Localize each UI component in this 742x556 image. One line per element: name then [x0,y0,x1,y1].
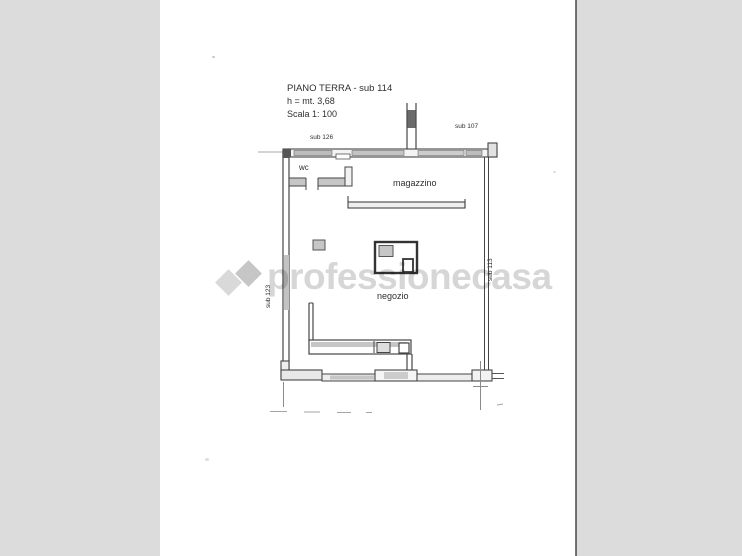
sub-label-123: sub 123 [265,284,272,308]
wc-return-wall [345,167,352,186]
floor-plan-drawing: PIANO TERRA - sub 114 h = mt. 3,68 Scala… [0,0,742,556]
plan-scale-note: Scala 1: 100 [287,109,337,119]
dimension-marks [270,361,503,413]
room-label-negozio: negozio [377,291,409,301]
sub-label-107: sub 107 [455,123,479,130]
left-wall [283,150,289,378]
counter [309,303,412,372]
sub-label-126: sub 126 [310,134,334,141]
plan-title: PIANO TERRA - sub 114 [287,83,392,94]
top-wall-right-stub [488,143,497,157]
bottom-wall [281,361,504,381]
central-block-inset-hatched [379,246,393,257]
central-block-inset-box [403,259,413,272]
plan-height-note: h = mt. 3,68 [287,96,335,106]
plan-header: PIANO TERRA - sub 114 h = mt. 3,68 Scala… [287,83,392,119]
top-wall [258,143,497,159]
magazzino-partition [348,196,465,208]
top-wall-stub [407,103,416,149]
room-label-wc: wc [298,163,309,172]
central-block [375,242,417,273]
counter-box-1 [377,343,390,353]
scan-viewport: PIANO TERRA - sub 114 h = mt. 3,68 Scala… [0,0,742,556]
pillar [313,240,325,250]
counter-box-2 [399,343,409,353]
room-label-magazzino: magazzino [393,178,437,188]
